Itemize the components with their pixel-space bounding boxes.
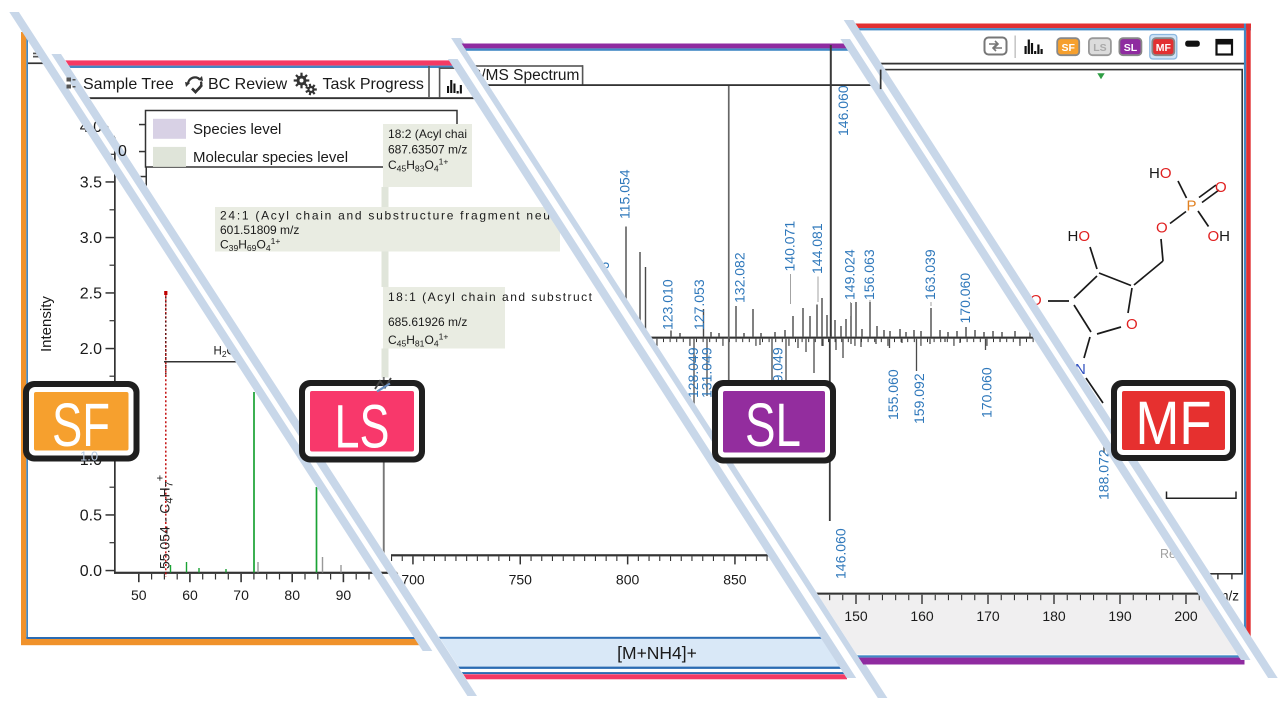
svg-text:188.072: 188.072 <box>1096 449 1112 500</box>
svg-text:0: 0 <box>118 143 127 160</box>
svg-text:0.0: 0.0 <box>80 563 102 580</box>
svg-text:140.071: 140.071 <box>782 221 798 272</box>
svg-text:50: 50 <box>131 587 147 603</box>
svg-text:18:2 (Acyl chai: 18:2 (Acyl chai <box>388 127 467 141</box>
svg-text:BC Review: BC Review <box>208 76 288 93</box>
svg-text:146.060: 146.060 <box>833 528 849 579</box>
svg-text:0.5: 0.5 <box>80 508 102 525</box>
svg-text:3.5: 3.5 <box>80 175 102 192</box>
svg-text:190: 190 <box>1108 608 1132 624</box>
svg-text:3.0: 3.0 <box>80 230 102 247</box>
svg-text:146.060: 146.060 <box>835 85 851 136</box>
svg-text:687.63507 m/z: 687.63507 m/z <box>388 143 467 157</box>
svg-text:149.024: 149.024 <box>842 249 858 300</box>
svg-text:160: 160 <box>910 608 934 624</box>
svg-text:155.060: 155.060 <box>885 369 901 420</box>
svg-text:18:1 (Acyl chain and substruct: 18:1 (Acyl chain and substruct <box>388 290 593 304</box>
svg-text:850: 850 <box>723 572 747 588</box>
svg-text:2.0: 2.0 <box>80 341 102 358</box>
svg-text:750: 750 <box>509 572 533 588</box>
svg-text:O: O <box>1215 179 1227 196</box>
svg-text:170.060: 170.060 <box>979 367 995 418</box>
svg-text:150: 150 <box>844 608 868 624</box>
svg-text:HO: HO <box>1068 228 1091 245</box>
svg-text:144.081: 144.081 <box>809 223 825 274</box>
svg-text:132.082: 132.082 <box>732 252 748 303</box>
svg-text:HO: HO <box>1149 165 1172 182</box>
svg-text:70: 70 <box>233 587 249 603</box>
svg-text:SL: SL <box>745 391 801 459</box>
svg-text:123.010: 123.010 <box>660 279 676 330</box>
svg-text:90: 90 <box>336 587 352 603</box>
svg-text:2.5: 2.5 <box>80 286 102 303</box>
svg-text:SL: SL <box>1124 42 1138 54</box>
svg-text:Species level: Species level <box>193 121 281 138</box>
svg-text:O: O <box>1126 316 1138 333</box>
svg-text:60: 60 <box>182 587 198 603</box>
svg-text:159.092: 159.092 <box>911 373 927 424</box>
svg-text:601.51809 m/z: 601.51809 m/z <box>220 223 299 237</box>
svg-text:115.054: 115.054 <box>617 169 633 219</box>
svg-text:Molecular species level: Molecular species level <box>193 149 348 166</box>
svg-text:55.054 - C4H7+: 55.054 - C4H7+ <box>155 475 176 569</box>
svg-text:80: 80 <box>284 587 300 603</box>
svg-text:156.063: 156.063 <box>861 249 877 300</box>
svg-text:180: 180 <box>1042 608 1066 624</box>
svg-text:685.61926 m/z: 685.61926 m/z <box>388 315 467 329</box>
svg-text:MF: MF <box>1156 42 1172 54</box>
svg-text:170.060: 170.060 <box>957 273 973 324</box>
svg-text:O: O <box>1156 220 1168 237</box>
svg-text:LS: LS <box>1093 42 1106 54</box>
svg-text:1.0: 1.0 <box>80 449 98 464</box>
svg-text:LS: LS <box>335 393 390 461</box>
svg-text:MF: MF <box>1136 389 1212 457</box>
svg-text:SF: SF <box>1061 42 1075 54</box>
svg-text:24:1 (Acyl chain and substruct: 24:1 (Acyl chain and substructure fragme… <box>220 209 556 223</box>
svg-text:800: 800 <box>616 572 640 588</box>
svg-text:163.039: 163.039 <box>922 249 938 300</box>
svg-text:170: 170 <box>976 608 1000 624</box>
svg-text:Intensity: Intensity <box>38 296 55 352</box>
svg-text:P: P <box>1187 198 1197 215</box>
svg-text:Sample Tree: Sample Tree <box>83 76 174 93</box>
svg-text:Task Progress: Task Progress <box>323 76 424 93</box>
svg-text:127.053: 127.053 <box>691 279 707 330</box>
svg-text:OH: OH <box>1208 228 1231 245</box>
svg-text:200: 200 <box>1174 608 1198 624</box>
svg-text:[M+NH4]+: [M+NH4]+ <box>617 643 697 663</box>
